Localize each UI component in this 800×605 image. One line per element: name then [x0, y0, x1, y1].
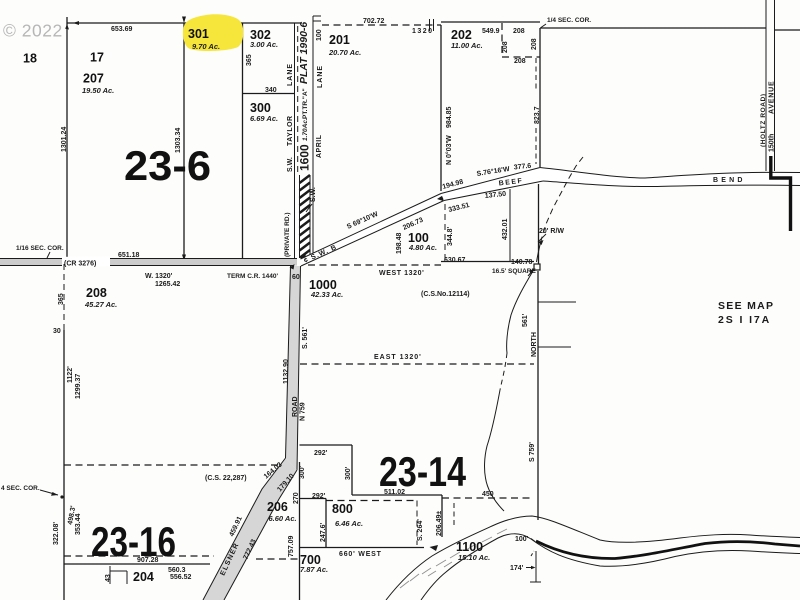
- svg-text:60: 60: [292, 274, 300, 281]
- svg-text:LANE: LANE: [317, 65, 324, 88]
- svg-text:20' R/W: 20' R/W: [539, 228, 564, 235]
- svg-text:556.52: 556.52: [170, 574, 192, 581]
- svg-text:9.70 Ac.: 9.70 Ac.: [192, 42, 220, 51]
- svg-text:N 759: N 759: [300, 402, 307, 421]
- svg-text:(C.S.No.12114): (C.S.No.12114): [421, 291, 470, 298]
- svg-text:202: 202: [451, 28, 472, 42]
- svg-text:1320: 1320: [412, 28, 434, 35]
- svg-text:1/16 SEC. COR.: 1/16 SEC. COR.: [16, 245, 64, 252]
- svg-text:823.7: 823.7: [534, 106, 541, 124]
- svg-text:353.44: 353.44: [75, 513, 82, 535]
- svg-text:300': 300': [299, 465, 306, 479]
- svg-text:198.48: 198.48: [396, 232, 403, 254]
- svg-text:WEST 1320': WEST 1320': [379, 270, 424, 277]
- svg-text:1299.37: 1299.37: [75, 374, 82, 399]
- svg-text:561': 561': [522, 313, 529, 327]
- svg-text:206: 206: [267, 500, 288, 514]
- svg-text:45.27 Ac.: 45.27 Ac.: [84, 300, 117, 309]
- svg-text:6.69 Ac.: 6.69 Ac.: [250, 114, 278, 123]
- svg-text:511.02: 511.02: [384, 489, 405, 496]
- svg-text:630.67: 630.67: [444, 257, 466, 264]
- svg-text:204: 204: [133, 570, 154, 584]
- svg-text:TAYLOR: TAYLOR: [287, 115, 294, 146]
- svg-text:EAST 1320': EAST 1320': [374, 354, 422, 361]
- svg-text:1.70Ac.: 1.70Ac.: [302, 118, 309, 141]
- svg-text:6.46 Ac.: 6.46 Ac.: [335, 519, 363, 528]
- svg-text:206.49±: 206.49±: [436, 511, 443, 536]
- svg-text:20.70 Ac.: 20.70 Ac.: [328, 48, 361, 57]
- svg-text:365: 365: [246, 54, 253, 66]
- svg-text:LANE: LANE: [287, 63, 294, 86]
- svg-text:208: 208: [514, 58, 526, 65]
- svg-text:1/4 SEC. COR.: 1/4 SEC. COR.: [547, 17, 591, 24]
- svg-text:PLAT 1990-6: PLAT 1990-6: [298, 22, 310, 84]
- svg-text:3.00 Ac.: 3.00 Ac.: [250, 40, 278, 49]
- svg-text:174': 174': [510, 565, 524, 572]
- svg-text:AVENUE: AVENUE: [769, 81, 776, 114]
- svg-text:N 0°03'W: N 0°03'W: [445, 135, 453, 165]
- svg-text:23-14: 23-14: [379, 448, 467, 495]
- svg-text:43: 43: [105, 574, 112, 582]
- svg-text:NORTH: NORTH: [531, 332, 538, 357]
- svg-text:150th: 150th: [769, 134, 776, 152]
- svg-text:549.9: 549.9: [482, 28, 500, 35]
- svg-text:208: 208: [502, 41, 509, 53]
- svg-text:292': 292': [314, 450, 328, 457]
- svg-text:11.00 Ac.: 11.00 Ac.: [451, 41, 483, 50]
- svg-text:S 759': S 759': [529, 442, 536, 462]
- svg-text:100': 100': [515, 536, 529, 543]
- svg-text:270: 270: [293, 492, 300, 504]
- svg-text:365: 365: [58, 293, 65, 305]
- svg-text:(HOLTZ ROAD): (HOLTZ ROAD): [760, 93, 767, 147]
- svg-text:7.87 Ac.: 7.87 Ac.: [300, 565, 328, 574]
- svg-text:208: 208: [531, 38, 538, 50]
- svg-text:42.33 Ac.: 42.33 Ac.: [310, 290, 343, 299]
- svg-text:TERM C.R. 1440': TERM C.R. 1440': [227, 273, 278, 280]
- svg-text:247.6': 247.6': [320, 522, 327, 542]
- svg-text:702.72: 702.72: [363, 18, 385, 25]
- svg-text:1303.34: 1303.34: [175, 128, 182, 153]
- svg-text:432.01: 432.01: [502, 218, 509, 240]
- svg-text:23-16: 23-16: [91, 518, 176, 565]
- svg-text:208: 208: [86, 286, 107, 300]
- svg-text:30: 30: [53, 328, 61, 335]
- svg-text:301: 301: [188, 27, 209, 41]
- svg-text:23-6: 23-6: [124, 142, 211, 189]
- svg-text:(CR 3276): (CR 3276): [64, 261, 96, 268]
- svg-text:BEND: BEND: [713, 177, 746, 184]
- svg-text:S. 561': S. 561': [302, 327, 309, 349]
- svg-text:340: 340: [265, 87, 277, 94]
- svg-text:18: 18: [23, 52, 37, 66]
- svg-text:322.08': 322.08': [53, 522, 60, 545]
- svg-text:S.W.: S.W.: [287, 157, 294, 172]
- svg-text:1122': 1122': [67, 366, 74, 383]
- svg-text:292': 292': [312, 493, 326, 500]
- svg-text:(C.S. 22,287): (C.S. 22,287): [205, 475, 247, 482]
- svg-text:800: 800: [332, 502, 353, 516]
- svg-text:PT.TR."A": PT.TR."A": [302, 88, 309, 119]
- svg-text:907.28: 907.28: [137, 557, 159, 564]
- svg-text:140.78: 140.78: [511, 259, 533, 266]
- svg-text:1132.90: 1132.90: [283, 359, 290, 384]
- svg-text:1100: 1100: [456, 540, 483, 554]
- svg-text:207: 207: [83, 72, 104, 86]
- svg-text:1600: 1600: [298, 144, 312, 171]
- svg-text:S. 264': S. 264': [417, 519, 424, 541]
- svg-text:SEE MAP: SEE MAP: [718, 300, 774, 312]
- svg-text:15.10 Ac.: 15.10 Ac.: [458, 553, 490, 562]
- svg-text:6.60 Ac.: 6.60 Ac.: [269, 514, 297, 523]
- svg-text:1265.42: 1265.42: [155, 281, 180, 288]
- svg-text:© 2022: © 2022: [3, 21, 63, 41]
- svg-text:ROAD: ROAD: [292, 396, 299, 417]
- svg-text:653.69: 653.69: [111, 26, 133, 33]
- svg-text:16.5' SQUARE: 16.5' SQUARE: [492, 268, 536, 275]
- svg-text:344.8': 344.8': [447, 226, 454, 246]
- svg-text:984.85: 984.85: [446, 106, 453, 128]
- svg-text:(PRIVATE RD.): (PRIVATE RD.): [284, 212, 291, 257]
- svg-text:17: 17: [90, 51, 104, 65]
- svg-text:208: 208: [513, 28, 525, 35]
- svg-text:757.09: 757.09: [288, 535, 295, 557]
- svg-text:2S I I7A: 2S I I7A: [718, 314, 771, 326]
- svg-text:APRIL: APRIL: [316, 134, 323, 158]
- svg-text:300: 300: [250, 101, 271, 115]
- svg-text:4.80 Ac.: 4.80 Ac.: [408, 243, 437, 252]
- svg-text:201: 201: [329, 33, 350, 47]
- svg-text:W. 1320': W. 1320': [145, 273, 173, 280]
- svg-text:S.W.: S.W.: [310, 187, 317, 202]
- svg-text:4 SEC. COR.: 4 SEC. COR.: [1, 485, 40, 492]
- svg-text:450: 450: [482, 491, 494, 498]
- svg-text:560.3: 560.3: [168, 567, 186, 574]
- svg-text:300': 300': [345, 466, 352, 480]
- svg-text:1301.24: 1301.24: [61, 127, 68, 152]
- svg-text:19.50 Ac.: 19.50 Ac.: [82, 86, 114, 95]
- svg-text:660' WEST: 660' WEST: [339, 551, 382, 558]
- svg-text:100: 100: [316, 29, 323, 41]
- svg-text:651.18: 651.18: [118, 252, 140, 259]
